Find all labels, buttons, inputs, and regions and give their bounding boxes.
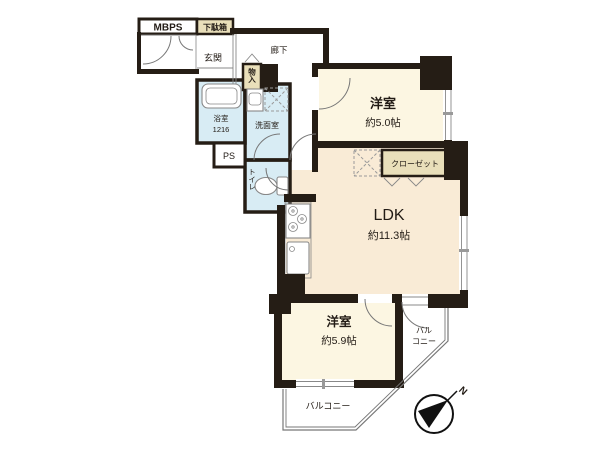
ldk-size-label: 約11.3帖 [368,228,411,242]
ldk-label: LDK [373,207,404,224]
compass-icon: N [415,385,469,433]
balcony-bottom-label: バルコニー [306,401,351,411]
hallway-label: 廊下 [270,45,288,55]
stove-icon [286,204,310,238]
toilet-icon [255,177,288,195]
closet-label: クローゼット [391,159,439,169]
bedroom1-label: 洋室 [370,96,396,111]
kitchen-sink-icon [287,242,309,274]
bedroom2-size-label: 約5.9帖 [321,334,357,347]
ldk-window [459,216,469,290]
bathroom-size-label: 1216 [213,125,230,134]
bedroom1-door-opening [311,77,319,110]
vanity-sink-icon [247,89,263,111]
balcony-door [402,294,428,308]
floor-plan-page: N MBPS 下駄箱 玄関 廊下 物入 浴室 1216 洗面室 PS トイレ 洋… [0,0,600,450]
pipe-space-label: PS [223,151,235,161]
bedroom2-window [296,379,354,389]
bedroom1-window [443,90,453,140]
bathroom-label: 浴室 [214,113,229,123]
balcony-side-label-line1: バル [416,326,432,335]
mbps-label: MBPS [154,23,183,34]
shoe-cabinet-label: 下駄箱 [203,22,227,32]
bedroom1-size-label: 約5.0帖 [365,116,401,129]
floor-plan: N MBPS 下駄箱 玄関 廊下 物入 浴室 1216 洗面室 PS トイレ 洋… [0,0,600,450]
washroom-label: 洗面室 [255,120,279,130]
bedroom2-label: 洋室 [326,314,352,329]
compass-north-label: N [456,385,469,398]
toilet-label: トイレ [248,168,257,191]
storage-label: 物入 [247,67,256,84]
balcony-side-label-line2: コニー [412,337,436,346]
entrance-label: 玄関 [204,52,222,63]
bedroom2-door-opening [358,294,392,303]
bathtub-icon [202,84,241,108]
